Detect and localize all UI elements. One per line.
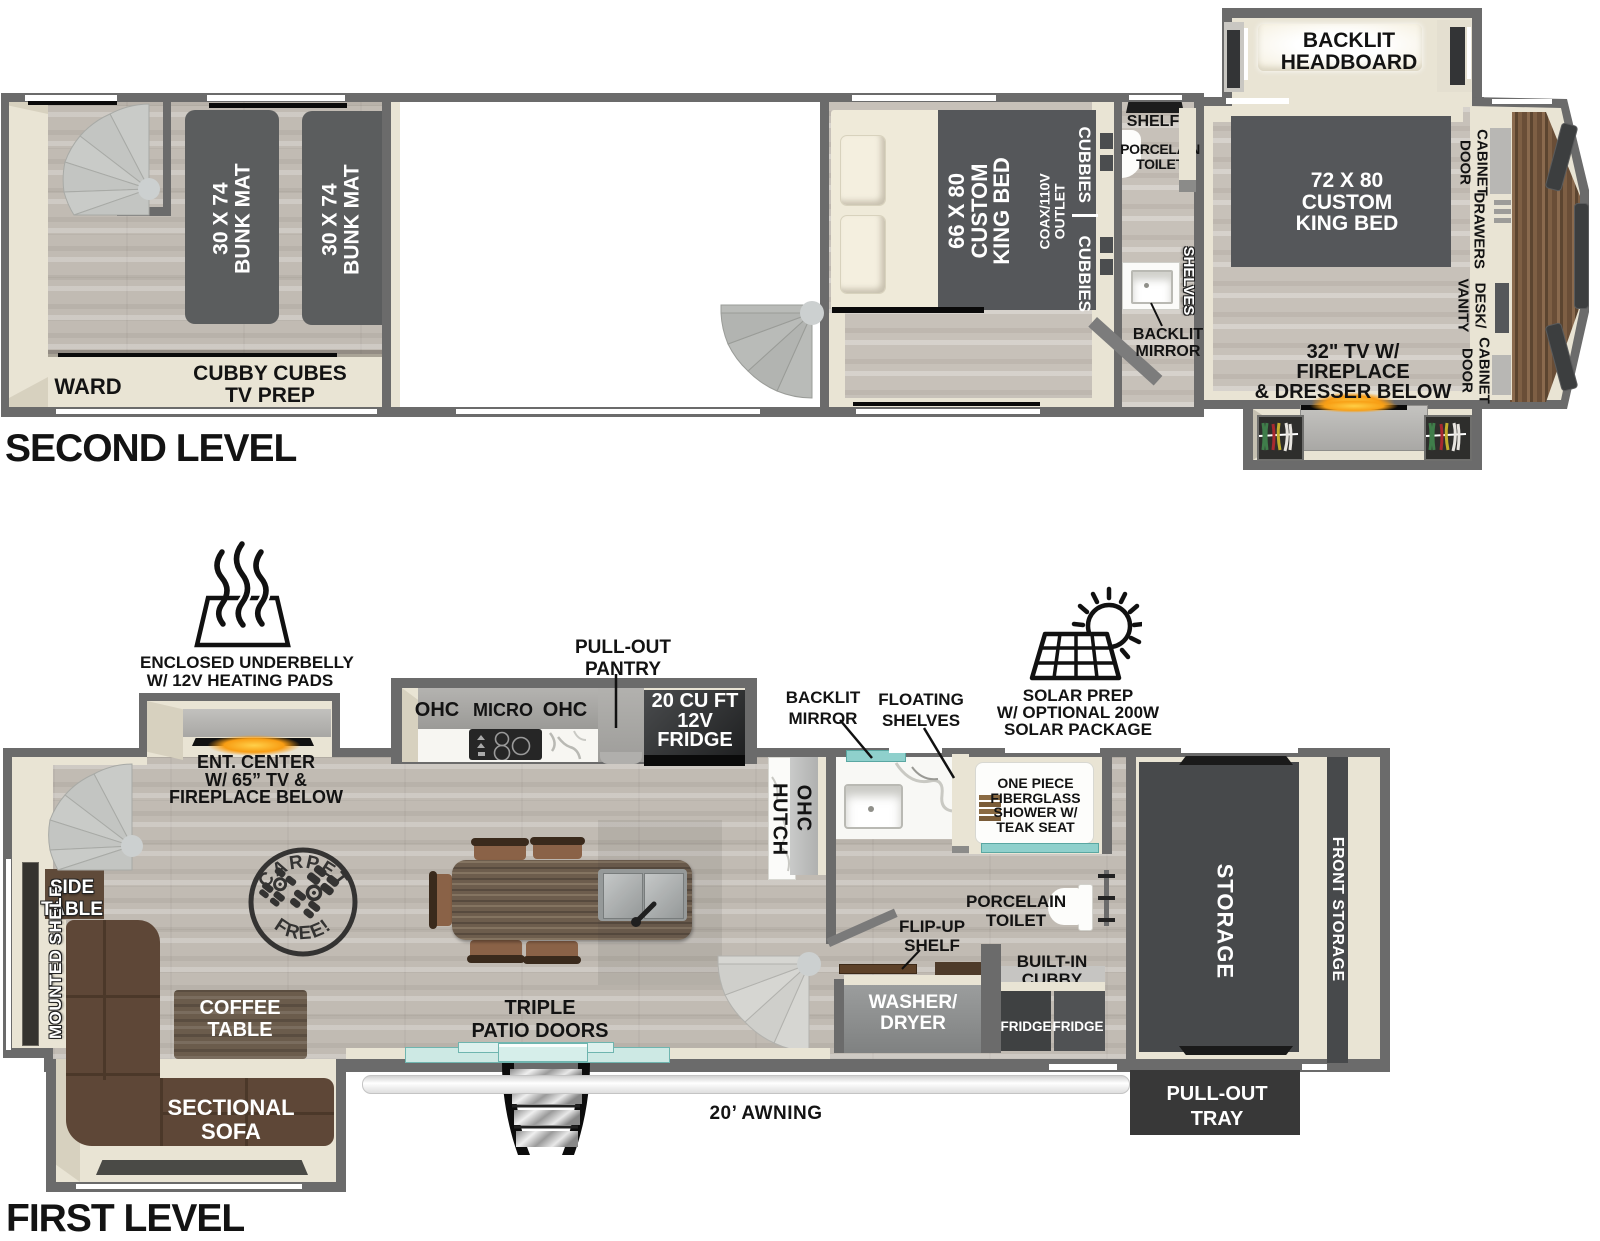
svg-text:FREE!: FREE! — [270, 915, 335, 945]
